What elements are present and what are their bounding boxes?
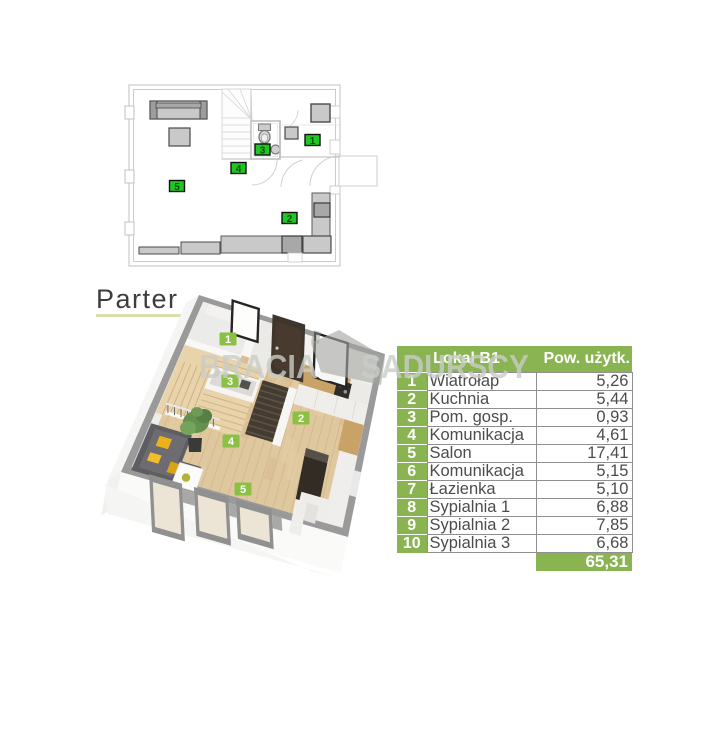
- svg-text:5: 5: [240, 484, 246, 496]
- svg-text:BRACIA: BRACIA: [199, 349, 318, 386]
- svg-text:SADURSCY: SADURSCY: [361, 349, 529, 386]
- svg-text:1: 1: [225, 334, 231, 346]
- svg-text:2: 2: [298, 413, 304, 425]
- svg-text:4: 4: [228, 436, 235, 448]
